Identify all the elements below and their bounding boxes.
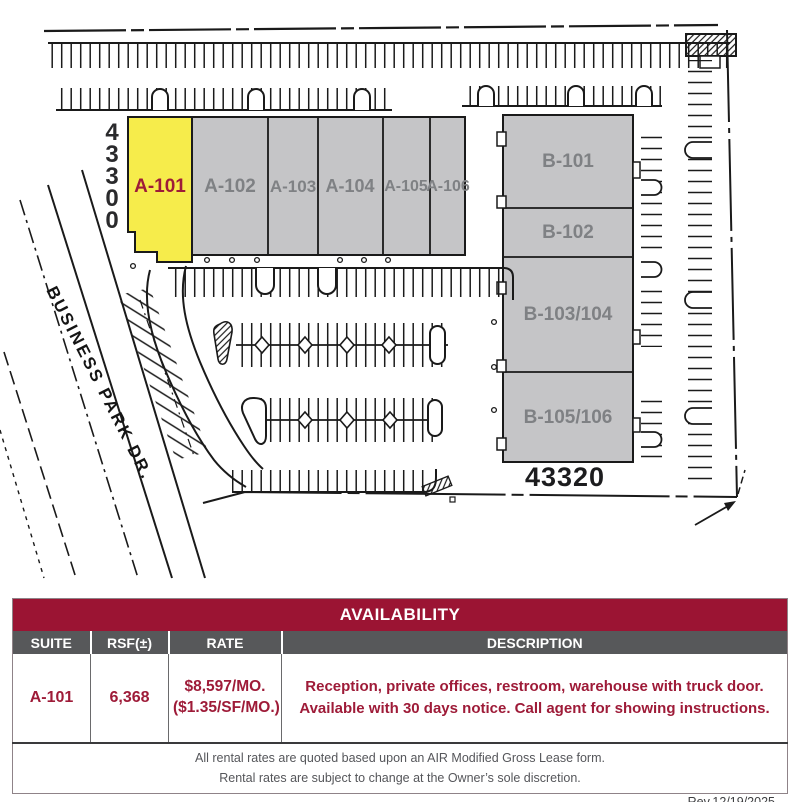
top-boundary-line	[44, 25, 718, 31]
description-line1: Reception, private offices, restroom, wa…	[286, 676, 783, 698]
suite-label-a103: A-103	[270, 177, 316, 196]
availability-table: AVAILABILITY SUITE RSF(±) RATE DESCRIPTI…	[12, 598, 788, 794]
rate-line2: ($1.35/SF/MO.)	[173, 698, 277, 719]
availability-title: AVAILABILITY	[13, 599, 788, 632]
suite-value: A-101	[13, 654, 91, 743]
suite-label-b102: B-102	[542, 222, 594, 243]
parking-row-under-a	[168, 268, 513, 300]
rate-value: $8,597/MO. ($1.35/SF/MO.)	[169, 654, 282, 743]
col-header-rate: RATE	[169, 631, 282, 654]
rate-line1: $8,597/MO.	[173, 677, 277, 698]
site-plan: A-101 A-102 A-103 A-104 A-105 A-106 4 3 …	[0, 0, 800, 592]
suite-label-b101: B-101	[542, 151, 594, 172]
footnote: All rental rates are quoted based upon a…	[13, 743, 788, 794]
central-parking-row-1	[214, 322, 448, 367]
availability-section: AVAILABILITY SUITE RSF(±) RATE DESCRIPTI…	[12, 598, 788, 802]
corner-arrow-head	[724, 501, 736, 511]
b-door-marks	[492, 320, 497, 413]
flyer-page: A-101 A-102 A-103 A-104 A-105 A-106 4 3 …	[0, 0, 800, 802]
description-value: Reception, private offices, restroom, wa…	[282, 654, 788, 743]
upper-parking-row-west	[56, 88, 392, 110]
address-43320: 43320	[525, 462, 605, 492]
suite-label-b103-104: B-103/104	[524, 304, 613, 325]
svg-text:0: 0	[105, 207, 118, 234]
corner-arrow	[695, 506, 728, 525]
east-parking-column	[685, 60, 712, 488]
suite-label-b105-106: B-105/106	[524, 407, 613, 428]
b-right-tabs	[633, 162, 640, 432]
col-header-rsf: RSF(±)	[91, 631, 169, 654]
top-parking-row	[48, 43, 730, 68]
right-property-line	[727, 30, 745, 497]
central-parking-row-2	[242, 398, 442, 444]
footnote-line2: Rental rates are subject to change at th…	[14, 769, 786, 788]
island-teardrop	[214, 322, 232, 364]
building-a: A-101 A-102 A-103 A-104 A-105 A-106	[128, 117, 470, 268]
bottom-parking-row	[232, 469, 436, 492]
rsf-value: 6,368	[91, 654, 169, 743]
col-header-description: DESCRIPTION	[282, 631, 788, 654]
upper-parking-row-east	[462, 86, 662, 106]
suite-label-a101: A-101	[134, 176, 186, 197]
island-corner	[242, 398, 266, 444]
description-line2: Available with 30 days notice. Call agen…	[286, 698, 783, 720]
suite-label-a102: A-102	[204, 176, 256, 197]
gate-marker	[422, 476, 452, 496]
revision-date: Rev.12/19/2025	[12, 795, 775, 802]
footnote-line1: All rental rates are quoted based upon a…	[14, 749, 786, 768]
suite-label-a106: A-106	[426, 178, 470, 195]
address-43300: 4 3 3 0 0	[105, 119, 119, 234]
table-row: A-101 6,368 $8,597/MO. ($1.35/SF/MO.) Re…	[13, 654, 788, 743]
b-side-parking	[641, 132, 662, 458]
suite-label-a105: A-105	[384, 178, 428, 195]
suite-label-a104: A-104	[325, 176, 374, 196]
col-header-suite: SUITE	[13, 631, 91, 654]
